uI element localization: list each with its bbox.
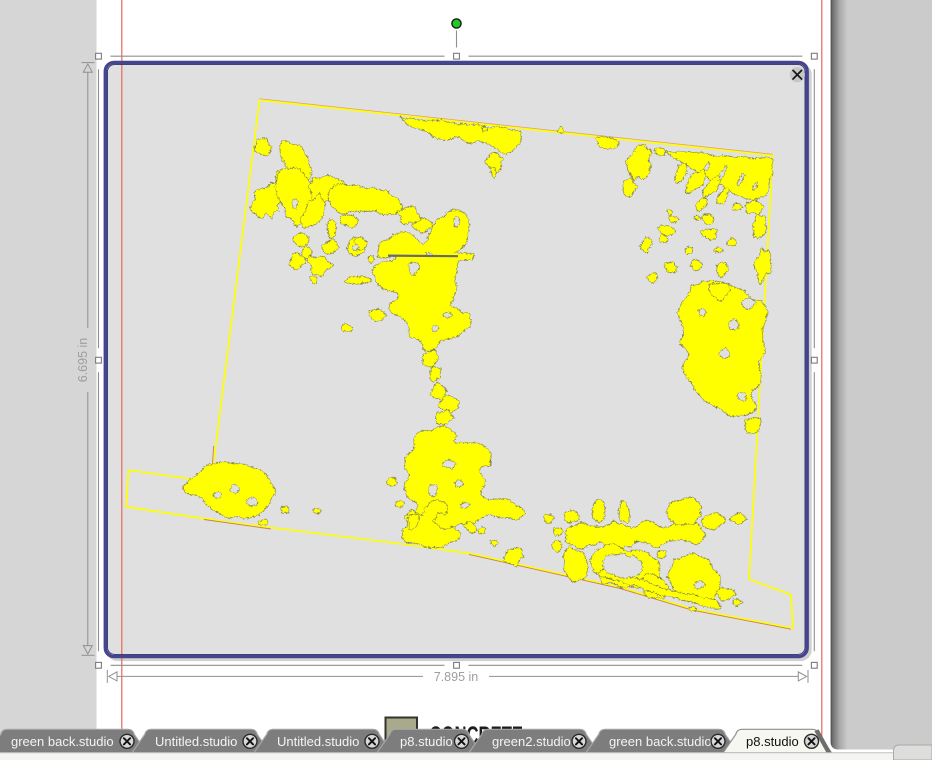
svg-text:green back.studio: green back.studio bbox=[11, 734, 114, 749]
svg-text:6.695 in: 6.695 in bbox=[76, 338, 90, 383]
svg-text:p8.studio: p8.studio bbox=[400, 734, 453, 749]
svg-text:7.895 in: 7.895 in bbox=[434, 670, 479, 684]
svg-text:Untitled.studio: Untitled.studio bbox=[277, 734, 359, 749]
svg-text:green2.studio: green2.studio bbox=[492, 734, 571, 749]
svg-text:Untitled.studio: Untitled.studio bbox=[155, 734, 237, 749]
svg-text:p8.studio: p8.studio bbox=[746, 734, 799, 749]
svg-text:green back.studio: green back.studio bbox=[609, 734, 712, 749]
